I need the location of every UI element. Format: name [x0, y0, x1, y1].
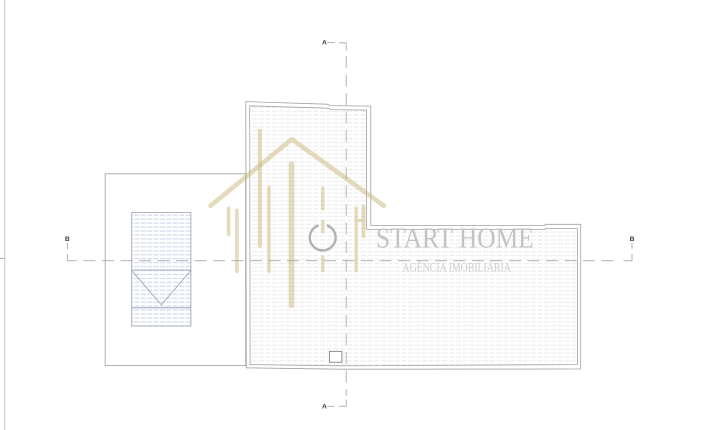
svg-text:START HOME: START HOME [376, 223, 534, 255]
svg-text:B: B [630, 236, 635, 243]
svg-text:A: A [322, 404, 327, 411]
svg-text:AGÊNCIA IMOBILIÁRIA: AGÊNCIA IMOBILIÁRIA [403, 261, 511, 275]
svg-text:B: B [65, 236, 70, 243]
svg-text:A: A [322, 40, 327, 47]
